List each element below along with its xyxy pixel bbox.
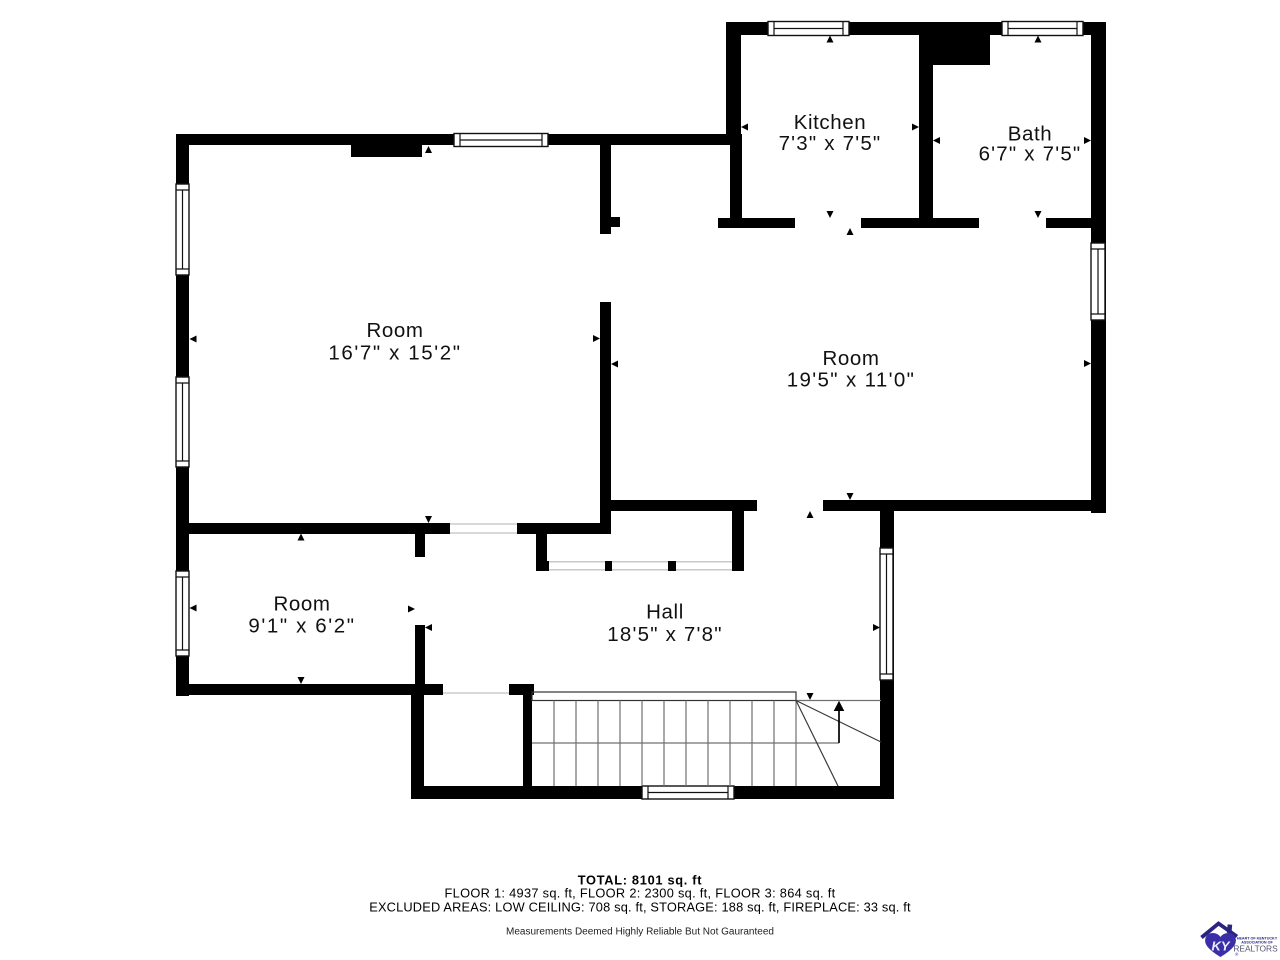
- svg-text:Measurements Deemed Highly Rel: Measurements Deemed Highly Reliable But …: [506, 927, 774, 938]
- svg-text:Hall: Hall: [646, 601, 684, 624]
- svg-text:EXCLUDED AREAS: LOW CEILING: 7: EXCLUDED AREAS: LOW CEILING: 708 sq. ft,…: [369, 900, 911, 915]
- svg-text:9'1" x 6'2": 9'1" x 6'2": [248, 615, 355, 638]
- svg-text:7'3" x 7'5": 7'3" x 7'5": [779, 132, 882, 155]
- svg-text:FLOOR 1: 4937 sq. ft, FLOOR 2:: FLOOR 1: 4937 sq. ft, FLOOR 2: 2300 sq. …: [445, 886, 836, 901]
- svg-text:Room: Room: [273, 593, 330, 616]
- svg-text:KY: KY: [1211, 939, 1230, 954]
- svg-text:6'7" x 7'5": 6'7" x 7'5": [979, 143, 1082, 166]
- svg-text:16'7" x 15'2": 16'7" x 15'2": [328, 342, 461, 365]
- svg-text:Kitchen: Kitchen: [794, 111, 867, 134]
- svg-text:Room: Room: [822, 347, 879, 370]
- svg-text:18'5" x 7'8": 18'5" x 7'8": [607, 623, 722, 646]
- svg-text:REALTORS: REALTORS: [1233, 944, 1278, 954]
- svg-text:19'5" x 11'0": 19'5" x 11'0": [787, 369, 915, 392]
- svg-text:Room: Room: [366, 319, 423, 342]
